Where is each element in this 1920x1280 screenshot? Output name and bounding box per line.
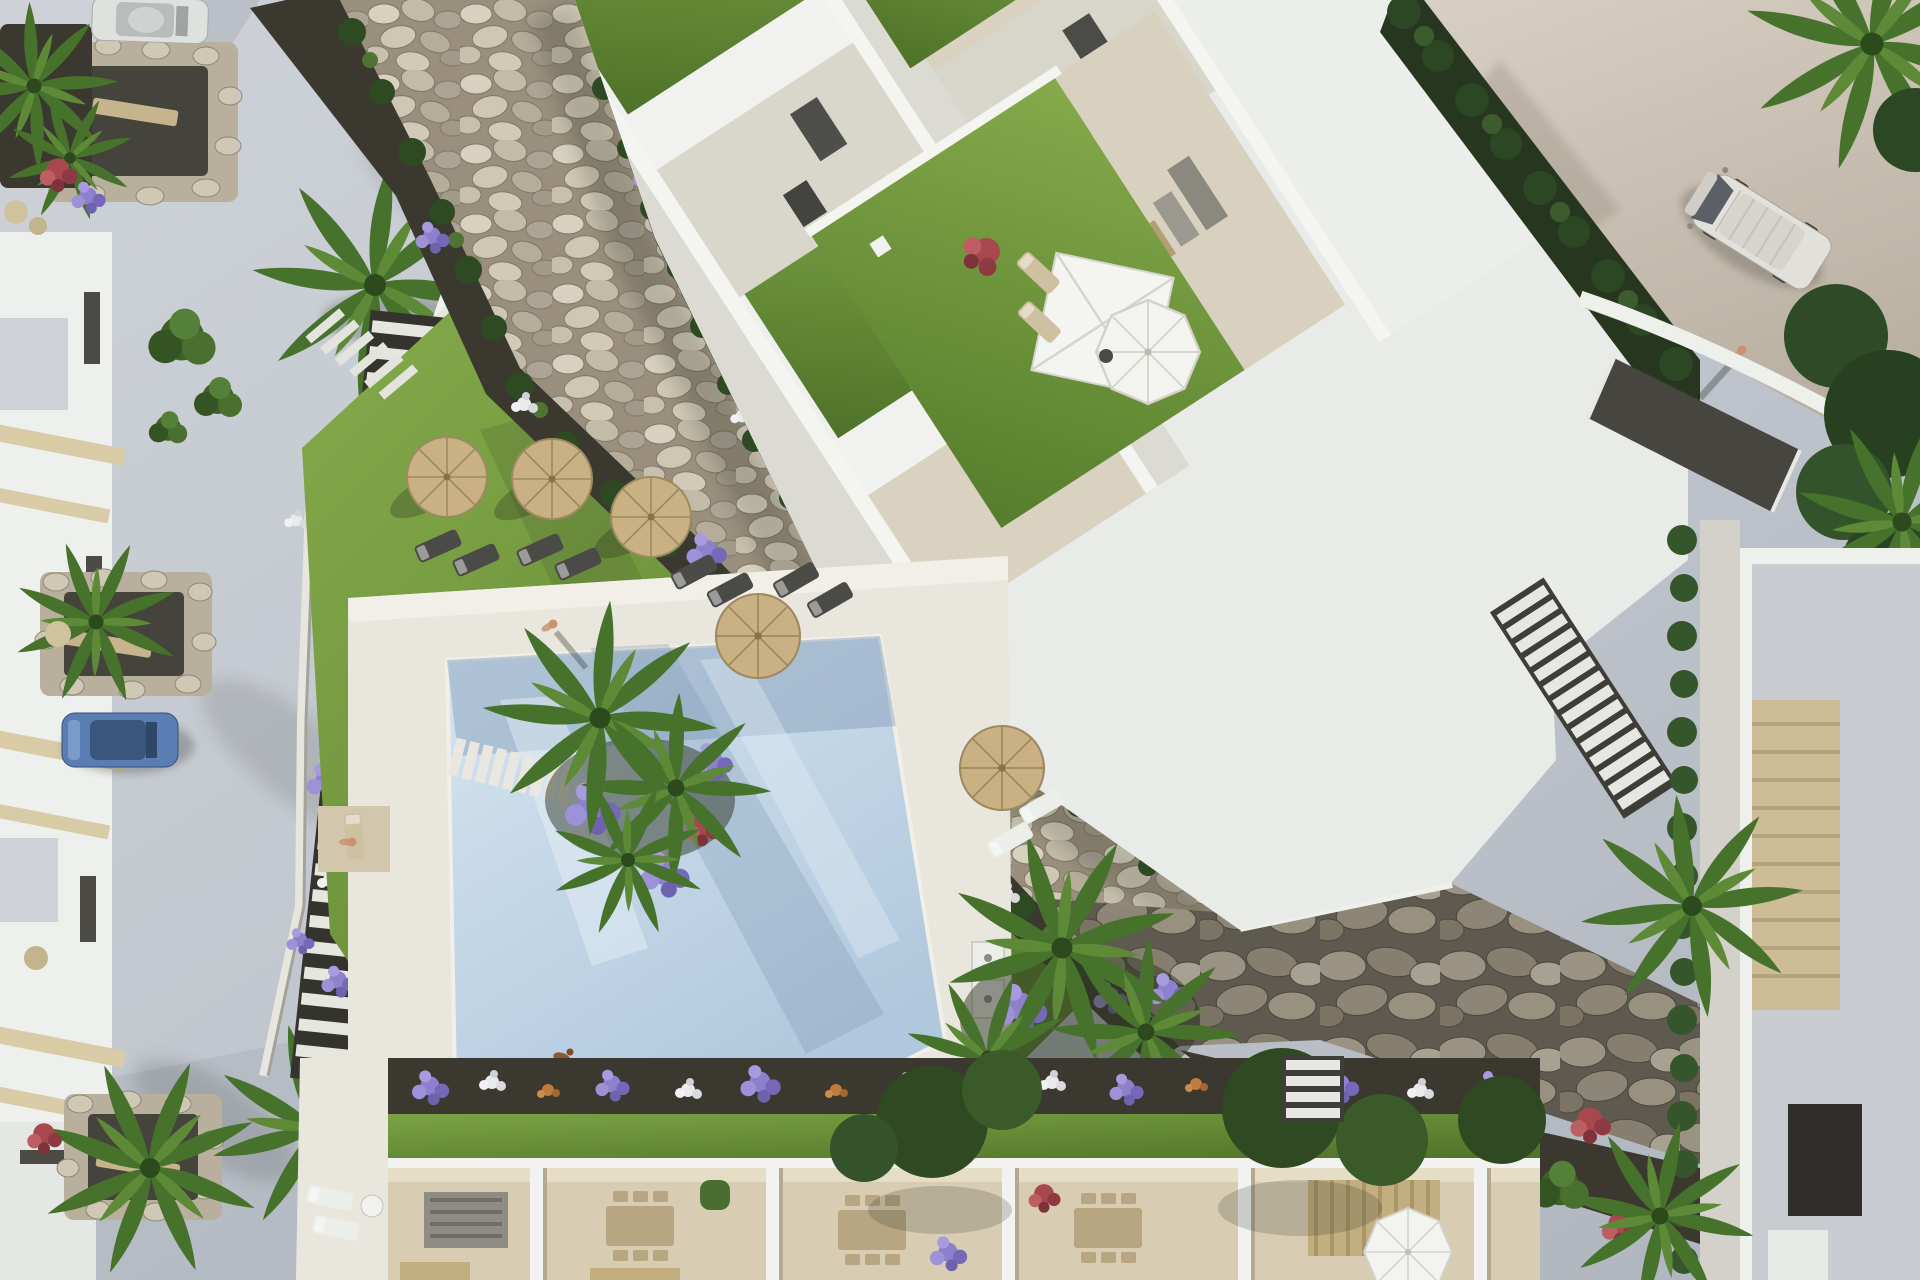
straw-parasol bbox=[960, 726, 1044, 810]
terrace-dining-set bbox=[606, 1191, 674, 1261]
blue-car bbox=[62, 713, 194, 774]
scene-canvas bbox=[0, 0, 1920, 1280]
terrace-dining-set bbox=[1074, 1193, 1142, 1263]
deck-seating-nook bbox=[318, 806, 390, 872]
straw-parasol bbox=[716, 594, 800, 678]
swimming-pool bbox=[447, 636, 945, 1080]
bottom-terraces bbox=[388, 1048, 1546, 1280]
aerial-render bbox=[0, 0, 1920, 1280]
straw-parasol bbox=[611, 477, 691, 557]
straw-parasol bbox=[407, 437, 487, 517]
white-car bbox=[91, 0, 208, 44]
straw-parasol bbox=[512, 439, 592, 519]
garden-steps bbox=[1282, 1056, 1344, 1122]
